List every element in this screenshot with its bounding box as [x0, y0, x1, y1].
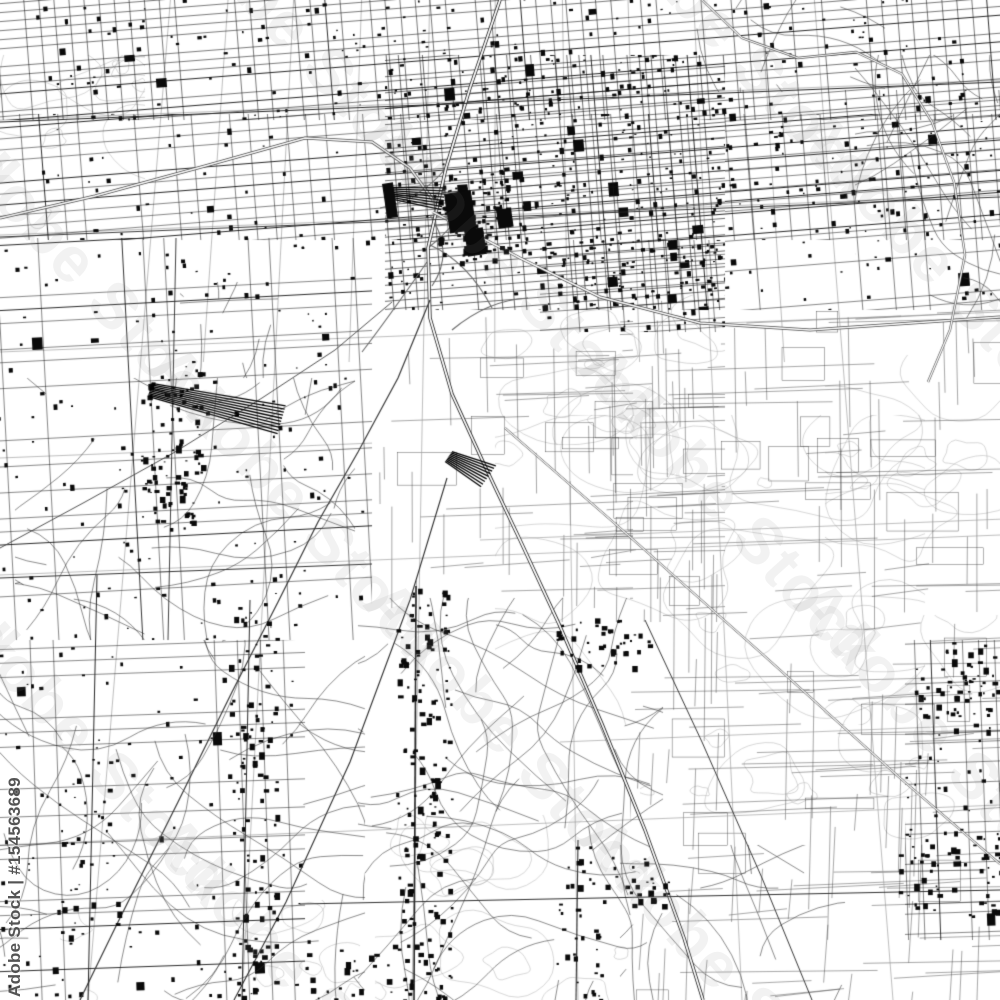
- stock-photo-preview: Adobe StockAdobe StockAdobe StockAdobe S…: [0, 0, 1000, 1000]
- map-image: [0, 0, 1000, 1000]
- watermark-id-label: Adobe Stock | #154563689: [5, 777, 25, 997]
